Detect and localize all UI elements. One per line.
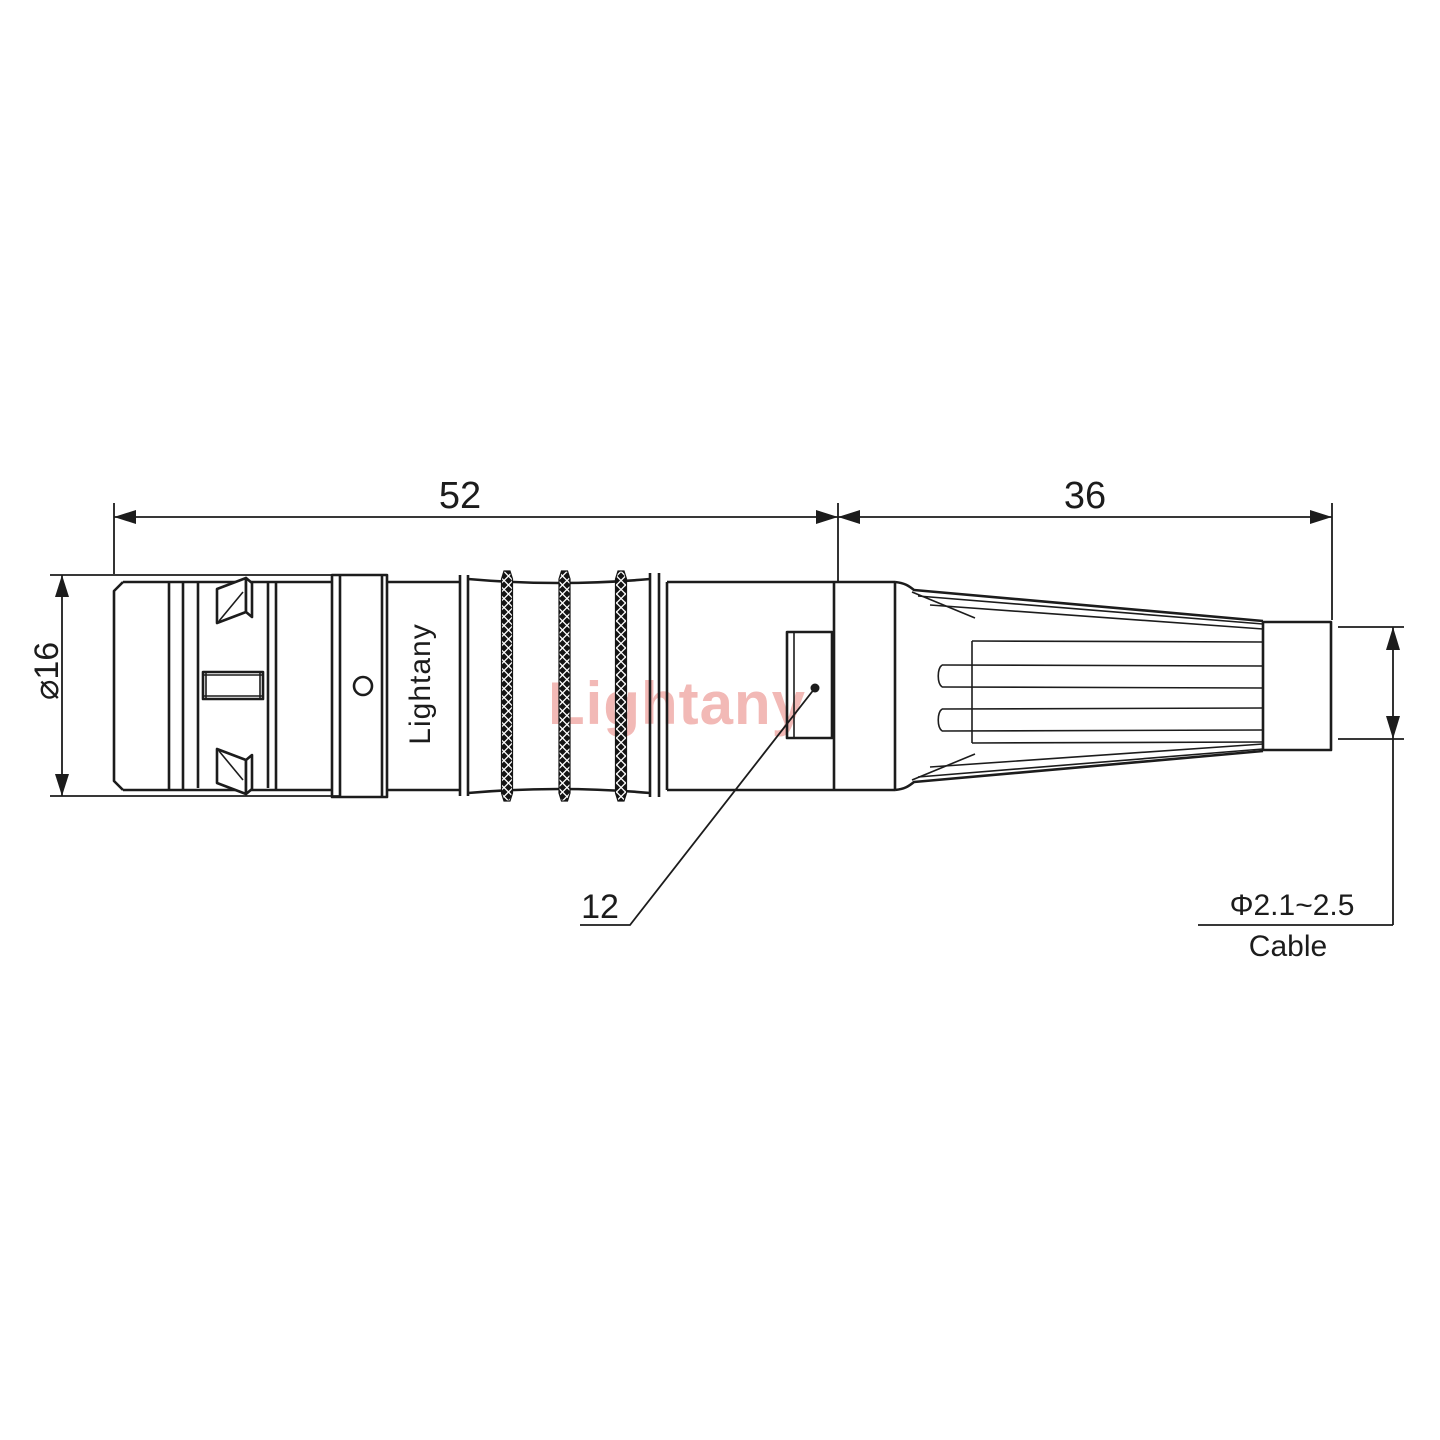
bottom-key bbox=[217, 749, 252, 794]
top-key bbox=[217, 578, 252, 623]
watermark-text: Lightany bbox=[548, 670, 806, 737]
dimension-52-label: 52 bbox=[439, 475, 481, 517]
collar-hole bbox=[354, 677, 372, 695]
body-left-edge bbox=[114, 582, 123, 790]
collar-band bbox=[332, 575, 387, 797]
technical-drawing-page: Lightany bbox=[0, 0, 1440, 1440]
latch-slot bbox=[203, 672, 263, 699]
cable-diameter-label: Φ2.1~2.5 bbox=[1230, 889, 1355, 922]
leader-12-label: 12 bbox=[581, 888, 619, 926]
boot-flutes bbox=[912, 592, 1263, 780]
dimension-cable: Φ2.1~2.5 Cable bbox=[1198, 627, 1404, 963]
knurl-band bbox=[559, 571, 570, 801]
connector-drawing: Lightany bbox=[0, 0, 1440, 1440]
brand-engraving-text: Lightany bbox=[404, 623, 437, 744]
cable-label: Cable bbox=[1249, 930, 1327, 963]
knurl-band bbox=[616, 571, 627, 801]
strain-relief-boot bbox=[834, 582, 1331, 790]
dimension-36: 36 bbox=[838, 475, 1332, 620]
knurl-band bbox=[502, 571, 513, 801]
dimension-52: 52 bbox=[114, 475, 838, 581]
recess-window bbox=[787, 632, 832, 738]
dimension-36-label: 36 bbox=[1064, 475, 1106, 517]
dimension-diameter-label: ⌀16 bbox=[28, 642, 66, 700]
cable-end-cap bbox=[1263, 622, 1331, 750]
